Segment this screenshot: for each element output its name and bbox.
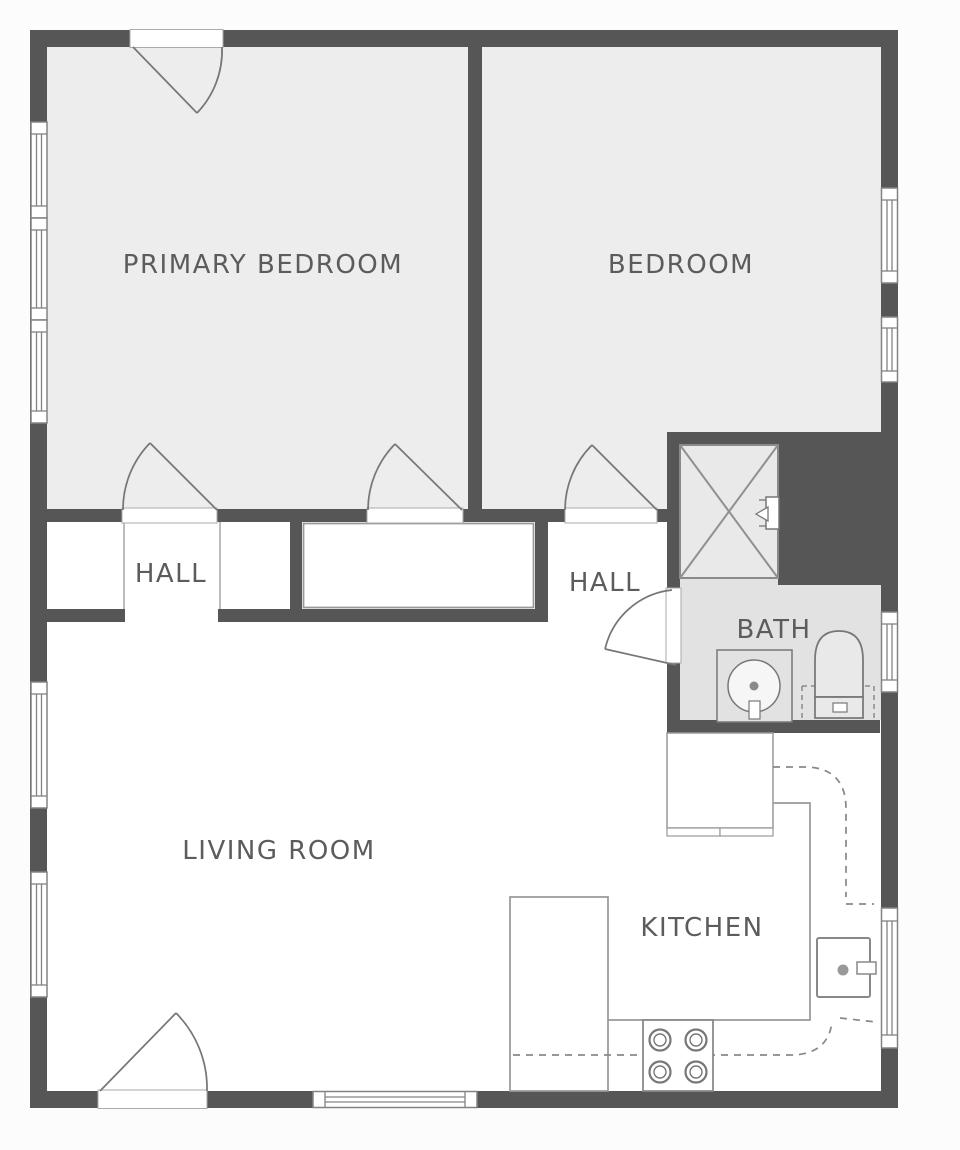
wall-bedrooms-bottom-seg3 xyxy=(463,509,565,522)
wall-bedrooms-bottom-seg2 xyxy=(217,509,367,522)
window-right-bedroom-1 xyxy=(882,188,898,283)
bath-label: BATH xyxy=(736,615,811,645)
window-left-1 xyxy=(31,122,47,218)
window-left-5 xyxy=(31,872,47,997)
floor-plan-page: PRIMARY BEDROOM BEDROOM HALL HALL BATH L… xyxy=(0,0,960,1150)
bedroom-label: BEDROOM xyxy=(608,250,754,280)
window-right-kitchen xyxy=(882,908,898,1048)
living-room-label: LIVING ROOM xyxy=(182,836,375,866)
floor-plan-svg: PRIMARY BEDROOM BEDROOM HALL HALL BATH L… xyxy=(0,0,960,1150)
wall-hall-bottom-mid xyxy=(218,609,302,622)
wall-bedroom-divider xyxy=(468,47,482,522)
hall-left-label: HALL xyxy=(135,559,207,589)
window-left-4 xyxy=(31,682,47,808)
window-right-bedroom-2 xyxy=(882,317,898,382)
wall-closet-right xyxy=(535,522,548,622)
wall-oven xyxy=(817,938,876,997)
window-left-2 xyxy=(31,218,47,320)
wall-hall-bottom-left xyxy=(30,609,125,622)
wall-bedrooms-bottom-seg4 xyxy=(657,509,667,522)
window-left-3 xyxy=(31,320,47,423)
window-bottom-living xyxy=(313,1092,477,1108)
hall-right-label: HALL xyxy=(569,568,641,598)
kitchen-counter-peninsula xyxy=(510,897,608,1091)
wall-bedrooms-bottom-seg1 xyxy=(47,509,122,522)
bath-dark-block xyxy=(778,432,881,585)
wall-closet-bottom xyxy=(302,609,548,622)
wall-bath-west-upper xyxy=(667,432,680,588)
kitchen-upper-cabinet xyxy=(667,733,773,836)
kitchen-label: KITCHEN xyxy=(640,913,763,943)
range-stove xyxy=(643,1020,713,1091)
window-right-bath xyxy=(882,612,898,692)
primary-bedroom-label: PRIMARY BEDROOM xyxy=(123,250,403,280)
sink-vanity xyxy=(717,650,792,722)
wall-hall-stub xyxy=(290,522,302,622)
